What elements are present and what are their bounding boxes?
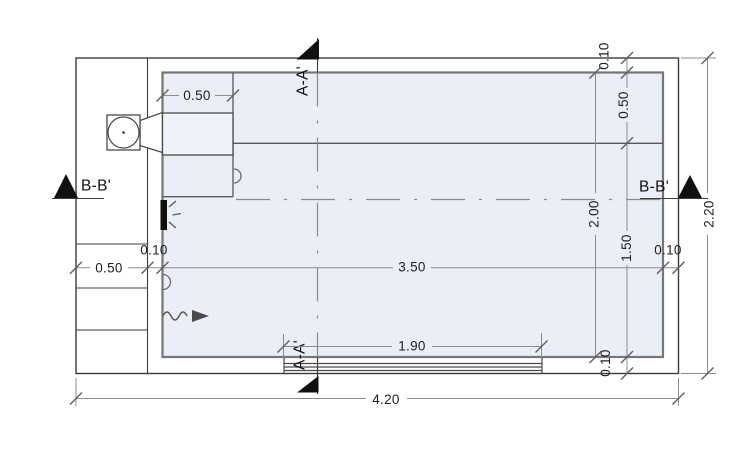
inlet-box xyxy=(163,113,234,155)
dim-right-wall-thickness: 0.10 xyxy=(654,243,681,258)
plan-svg: A-A' A-A' B-B' B-B' 0.50 0.10 3.50 0.10 … xyxy=(0,0,750,450)
tank-plan-drawing: A-A' A-A' B-B' B-B' 0.50 0.10 3.50 0.10 … xyxy=(0,0,750,450)
dim-left-wall-thickness: 0.10 xyxy=(140,243,167,258)
dim-interior-height-text: 2.00 xyxy=(587,200,602,227)
dim-overall-length: 4.20 xyxy=(70,378,685,407)
dim-inlet-box-width: 0.50 xyxy=(183,88,210,103)
dim-bottom-wall-thickness: 0.10 xyxy=(598,349,613,376)
dim-interior-length: 3.50 xyxy=(398,260,425,275)
section-label-bb-left: B-B' xyxy=(81,178,111,195)
dim-top-wall-thickness: 0.10 xyxy=(597,42,612,69)
section-arrow-bb-right xyxy=(678,175,702,198)
section-arrow-bb-left xyxy=(54,174,78,198)
dim-outlet-strip-length: 1.90 xyxy=(398,339,425,354)
section-label-aa-bottom: A-A' xyxy=(292,340,309,370)
dim-top-zone-height: 0.50 xyxy=(616,91,631,118)
pump-reducer xyxy=(140,113,163,153)
section-label-aa-top: A-A' xyxy=(295,66,312,96)
section-label-bb-right: B-B' xyxy=(639,179,669,196)
pump-center-dot xyxy=(122,131,125,134)
dim-left-chamber-width: 0.50 xyxy=(95,261,122,276)
sluice-gate xyxy=(161,200,168,230)
dim-lower-zone-height: 1.50 xyxy=(619,234,634,261)
stair-step-lines xyxy=(76,244,148,330)
outlet-weir-strip xyxy=(284,358,542,374)
dim-overall-height: 2.20 xyxy=(681,52,717,380)
dim-overall-height-text: 2.20 xyxy=(702,200,717,227)
dim-overall-length-text: 4.20 xyxy=(372,392,399,407)
section-arrow-aa-bottom xyxy=(297,376,319,393)
section-arrow-aa-top xyxy=(297,39,320,60)
